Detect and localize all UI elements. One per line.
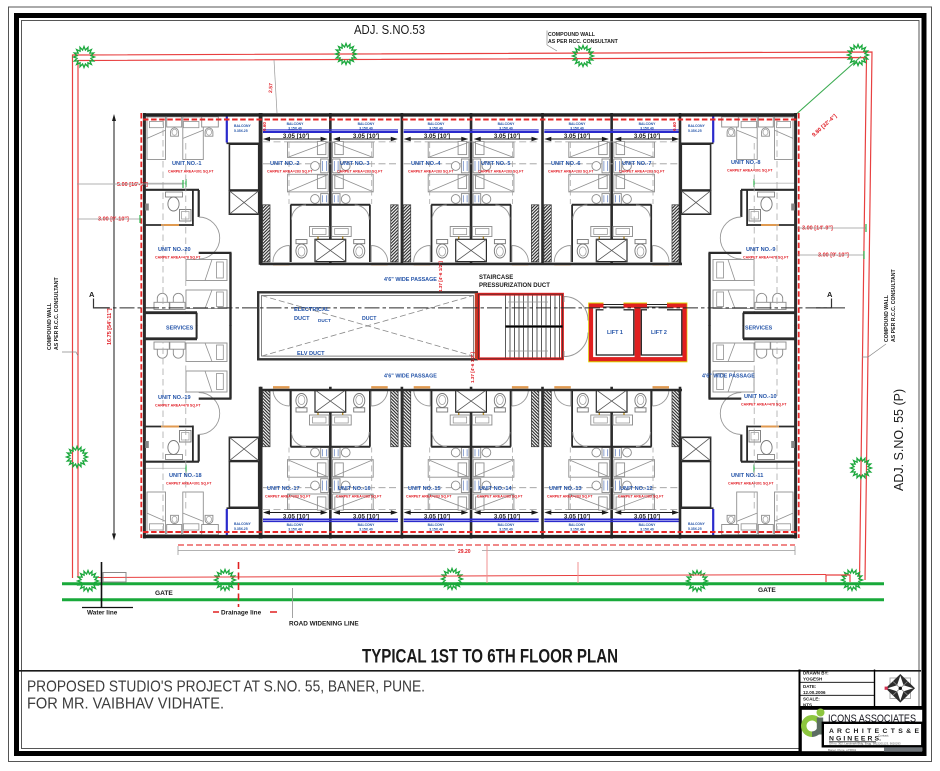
svg-text:5.35X.25: 5.35X.25: [234, 129, 248, 133]
svg-text:UNIT NO.-8: UNIT NO.-8: [731, 160, 761, 166]
svg-text:3.15X.40: 3.15X.40: [570, 528, 584, 532]
svg-text:UNIT NO.-1: UNIT NO.-1: [172, 161, 202, 167]
svg-text:UNIT NO.-4: UNIT NO.-4: [411, 161, 441, 167]
svg-text:Off no. 302, Landmark Bldg,: Off no. 302, Landmark Bldg, Engg. 982220…: [829, 742, 901, 746]
svg-text:BALCONY: BALCONY: [639, 122, 657, 126]
svg-text:CARPET AREA=478 SQ.FT: CARPET AREA=478 SQ.FT: [155, 404, 201, 408]
svg-text:DUCT: DUCT: [294, 316, 310, 322]
svg-text:4'6" WIDE PASSAGE: 4'6" WIDE PASSAGE: [702, 374, 755, 380]
svg-text:BALCONY: BALCONY: [358, 122, 376, 126]
svg-text:A: A: [827, 290, 833, 299]
svg-text:SCALE:: SCALE:: [803, 697, 820, 702]
svg-text:0.60: 0.60: [672, 122, 677, 131]
svg-text:CARPET AREA=283 SQ.FT: CARPET AREA=283 SQ.FT: [478, 170, 524, 174]
svg-text:3.05 [10']: 3.05 [10']: [424, 514, 450, 521]
svg-text:3.05 [10']: 3.05 [10']: [634, 133, 660, 140]
svg-text:ELV DUCT: ELV DUCT: [297, 351, 325, 357]
svg-text:Water line: Water line: [87, 610, 118, 617]
svg-text:BALCONY: BALCONY: [287, 122, 305, 126]
svg-text:UNIT NO.-7: UNIT NO.-7: [622, 161, 652, 167]
svg-text:CARPET AREA=283 SQ.FT: CARPET AREA=283 SQ.FT: [619, 170, 665, 174]
svg-text:UNIT NO.-16: UNIT NO.-16: [338, 486, 371, 492]
svg-text:BALCONY: BALCONY: [287, 523, 305, 527]
svg-text:DUCT: DUCT: [362, 316, 377, 322]
svg-text:AS PER R.C.C. CONSULTANT: AS PER R.C.C. CONSULTANT: [891, 268, 897, 342]
svg-text:3.15X.40: 3.15X.40: [359, 528, 373, 532]
svg-text:ADJ. S.NO.53: ADJ. S.NO.53: [354, 23, 425, 37]
svg-text:ADJ. S.NO. 55 (P): ADJ. S.NO. 55 (P): [892, 389, 906, 491]
svg-text:SERVICES: SERVICES: [166, 326, 194, 332]
svg-text:DUCT: DUCT: [318, 318, 331, 323]
svg-text:STAIRCASE: STAIRCASE: [479, 275, 513, 281]
svg-text:3.15X.40: 3.15X.40: [640, 127, 654, 131]
svg-text:UNIT NO.-18: UNIT NO.-18: [169, 473, 202, 479]
svg-text:5.35X.25: 5.35X.25: [688, 129, 702, 133]
svg-text:CARPET AREA=301 SQ.FT: CARPET AREA=301 SQ.FT: [727, 169, 773, 173]
svg-text:BALCONY: BALCONY: [358, 523, 376, 527]
svg-text:A: A: [89, 290, 95, 299]
svg-text:2.57: 2.57: [268, 83, 275, 93]
svg-text:ELECTRICAL: ELECTRICAL: [294, 307, 330, 313]
svg-text:UNIT NO.-2: UNIT NO.-2: [270, 161, 300, 167]
svg-text:3.15X.40: 3.15X.40: [288, 127, 302, 131]
svg-text:CARPET AREA=283 SQ.FT: CARPET AREA=283 SQ.FT: [265, 495, 311, 499]
svg-text:BALCONY: BALCONY: [234, 124, 252, 128]
svg-text:CARPET AREA=301 SQ.FT: CARPET AREA=301 SQ.FT: [166, 482, 212, 486]
svg-text:LIFT 2: LIFT 2: [651, 330, 667, 336]
svg-text:CARPET AREA=283 SQ.FT: CARPET AREA=283 SQ.FT: [477, 495, 523, 499]
svg-text:LIFT 1: LIFT 1: [607, 330, 623, 336]
svg-text:UNIT NO.-19: UNIT NO.-19: [158, 395, 191, 401]
svg-text:ROAD WIDENING LINE: ROAD WIDENING LINE: [289, 621, 359, 628]
svg-text:AS PER RCC. CONSULTANT: AS PER RCC. CONSULTANT: [548, 39, 619, 45]
svg-text:BALCONY: BALCONY: [498, 523, 516, 527]
svg-text:SERVICES: SERVICES: [745, 326, 773, 332]
svg-text:YOGESH: YOGESH: [803, 677, 822, 682]
svg-text:3.05 [10']: 3.05 [10']: [564, 133, 590, 140]
svg-text:BALCONY: BALCONY: [569, 523, 587, 527]
svg-text:3.05 [10']: 3.05 [10']: [494, 514, 520, 521]
svg-text:3.00 [9'-10"]: 3.00 [9'-10"]: [818, 253, 849, 259]
svg-text:3.05 [10']: 3.05 [10']: [634, 514, 660, 521]
svg-text:3.05 [10']: 3.05 [10']: [494, 133, 520, 140]
svg-text:UNIT NO.-20: UNIT NO.-20: [158, 247, 191, 253]
svg-text:CARPET AREA=301 SQ.FT: CARPET AREA=301 SQ.FT: [728, 482, 774, 486]
svg-text:1.37 [4'-6 1/2"]: 1.37 [4'-6 1/2"]: [470, 352, 475, 383]
svg-text:3.15X.40: 3.15X.40: [429, 528, 443, 532]
svg-text:UNIT NO.-5: UNIT NO.-5: [481, 161, 511, 167]
svg-text:BALCONY: BALCONY: [428, 523, 446, 527]
svg-text:CARPET AREA=478 SQ.FT: CARPET AREA=478 SQ.FT: [741, 403, 787, 407]
svg-text:DATE:: DATE:: [803, 684, 817, 689]
svg-text:5.35X.25: 5.35X.25: [234, 527, 248, 531]
svg-text:3.15X.40: 3.15X.40: [499, 127, 513, 131]
svg-text:COMPOUND WALL: COMPOUND WALL: [548, 32, 596, 38]
svg-text:PRESSURIZATION DUCT: PRESSURIZATION DUCT: [479, 283, 550, 289]
svg-text:BALCONY: BALCONY: [234, 522, 252, 526]
svg-text:CARPET AREA=478 SQ.FT: CARPET AREA=478 SQ.FT: [743, 256, 789, 260]
svg-text:3.15X.40: 3.15X.40: [429, 127, 443, 131]
svg-text:CARPET AREA=283 SQ.FT: CARPET AREA=283 SQ.FT: [406, 495, 452, 499]
svg-text:CARPET AREA=283 SQ.FT: CARPET AREA=283 SQ.FT: [408, 170, 454, 174]
svg-text:3.00 [9'-10"]: 3.00 [9'-10"]: [98, 217, 129, 223]
svg-text:4'6" WIDE PASSAGE: 4'6" WIDE PASSAGE: [384, 374, 437, 380]
svg-text:UNIT NO.-9: UNIT NO.-9: [746, 247, 776, 253]
svg-text:5.35X.25: 5.35X.25: [688, 527, 702, 531]
svg-text:UNIT NO.-10: UNIT NO.-10: [744, 394, 777, 400]
svg-text:A R C H I T E C T S & E: A R C H I T E C T S & E: [829, 728, 919, 735]
svg-text:UNIT NO.-17: UNIT NO.-17: [267, 486, 300, 492]
svg-text:PROPOSED STUDIO'S PROJECT AT S: PROPOSED STUDIO'S PROJECT AT S.NO. 55, B…: [27, 679, 425, 696]
svg-text:BALCONY: BALCONY: [498, 122, 516, 126]
svg-text:3.15X.40: 3.15X.40: [499, 528, 513, 532]
svg-text:1.37 [4'-6 1/2"]: 1.37 [4'-6 1/2"]: [438, 261, 443, 292]
svg-text:CARPET AREA=283 SQ.FT: CARPET AREA=283 SQ.FT: [336, 495, 382, 499]
svg-text:COMPOUND WALL: COMPOUND WALL: [47, 302, 53, 350]
svg-text:CARPET AREA=283 SQ.FT: CARPET AREA=283 SQ.FT: [548, 170, 594, 174]
svg-text:UNIT NO.-6: UNIT NO.-6: [551, 161, 581, 167]
svg-text:Contact:: Contact:: [878, 734, 889, 738]
svg-text:GATE: GATE: [758, 587, 776, 594]
svg-text:BALCONY: BALCONY: [688, 522, 706, 526]
svg-text:3.05 [10']: 3.05 [10']: [424, 133, 450, 140]
svg-text:29.20: 29.20: [458, 549, 471, 555]
svg-text:Drainage line: Drainage line: [221, 610, 262, 617]
svg-text:12.00.2006: 12.00.2006: [803, 690, 826, 695]
svg-text:FOR MR. VAIBHAV VIDHATE.: FOR MR. VAIBHAV VIDHATE.: [27, 696, 224, 713]
svg-text:3.05 [10']: 3.05 [10']: [283, 514, 309, 521]
svg-text:CARPET AREA=478 SQ.FT: CARPET AREA=478 SQ.FT: [155, 256, 201, 260]
svg-text:3.00 [14'-9"]: 3.00 [14'-9"]: [802, 226, 833, 232]
svg-text:0.60: 0.60: [262, 122, 267, 131]
svg-text:3.15X.40: 3.15X.40: [640, 528, 654, 532]
svg-text:CARPET AREA=283 SQ.FT: CARPET AREA=283 SQ.FT: [267, 170, 313, 174]
svg-text:UNIT NO.-13: UNIT NO.-13: [549, 486, 582, 492]
svg-text:NTS: NTS: [803, 702, 812, 707]
svg-text:BALCONY: BALCONY: [639, 523, 657, 527]
svg-text:DRAWN BY:: DRAWN BY:: [803, 671, 829, 676]
svg-text:3.05 [10']: 3.05 [10']: [564, 514, 590, 521]
svg-text:UNIT NO.-12: UNIT NO.-12: [620, 486, 653, 492]
svg-text:UNIT NO.-15: UNIT NO.-15: [408, 486, 441, 492]
svg-text:CARPET AREA=283 SQ.FT: CARPET AREA=283 SQ.FT: [547, 495, 593, 499]
svg-text:3.05 [10']: 3.05 [10']: [353, 514, 379, 521]
svg-text:3.15X.40: 3.15X.40: [359, 127, 373, 131]
svg-text:UNIT NO.-11: UNIT NO.-11: [731, 473, 763, 479]
svg-text:4'6" WIDE PASSAGE: 4'6" WIDE PASSAGE: [384, 277, 437, 283]
svg-text:3.05 [10']: 3.05 [10']: [353, 133, 379, 140]
svg-text:3.15X.40: 3.15X.40: [288, 528, 302, 532]
svg-text:CARPET AREA=301 SQ.FT: CARPET AREA=301 SQ.FT: [168, 170, 214, 174]
svg-text:COMPOUND WALL: COMPOUND WALL: [884, 294, 890, 342]
svg-text:GATE: GATE: [155, 590, 173, 597]
svg-text:CARPET AREA=283 SQ.FT: CARPET AREA=283 SQ.FT: [618, 495, 664, 499]
svg-text:BALCONY: BALCONY: [569, 122, 587, 126]
svg-text:3.05 [10']: 3.05 [10']: [283, 133, 309, 140]
svg-text:3.15X.40: 3.15X.40: [570, 127, 584, 131]
svg-text:UNIT NO.-3: UNIT NO.-3: [340, 161, 370, 167]
svg-text:Baner, Pune, of 5841: Baner, Pune, of 5841: [828, 748, 857, 752]
svg-text:5.00 [16'-5"]: 5.00 [16'-5"]: [117, 182, 148, 188]
svg-text:AS PER R.C.C. CONSULTANT: AS PER R.C.C. CONSULTANT: [54, 276, 60, 350]
svg-text:BALCONY: BALCONY: [688, 124, 706, 128]
svg-text:16.75 [54'-11"]: 16.75 [54'-11"]: [107, 308, 113, 345]
svg-text:UNIT NO.-14: UNIT NO.-14: [479, 486, 513, 492]
svg-text:BALCONY: BALCONY: [428, 122, 446, 126]
svg-text:TYPICAL 1ST TO 6TH FLOOR PLAN: TYPICAL 1ST TO 6TH FLOOR PLAN: [362, 647, 618, 668]
svg-text:CARPET AREA=283 SQ.FT: CARPET AREA=283 SQ.FT: [337, 170, 383, 174]
